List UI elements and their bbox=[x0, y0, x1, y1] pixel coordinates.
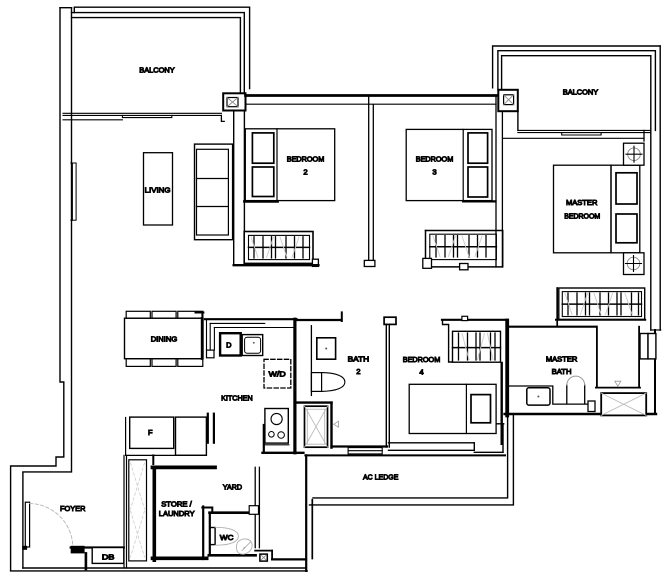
svg-text:LIVING: LIVING bbox=[145, 185, 171, 194]
svg-text:YARD: YARD bbox=[223, 483, 243, 492]
svg-text:LAUNDRY: LAUNDRY bbox=[159, 509, 195, 518]
svg-text:WC: WC bbox=[220, 533, 234, 542]
svg-text:BEDROOM: BEDROOM bbox=[564, 212, 600, 221]
svg-text:F: F bbox=[148, 428, 153, 437]
svg-text:W/D: W/D bbox=[269, 370, 286, 379]
svg-text:KITCHEN: KITCHEN bbox=[221, 393, 253, 402]
svg-text:BEDROOM: BEDROOM bbox=[287, 155, 325, 164]
svg-text:2: 2 bbox=[356, 367, 360, 376]
svg-text:DB: DB bbox=[102, 553, 115, 562]
svg-text:2: 2 bbox=[303, 168, 307, 177]
svg-text:FOYER: FOYER bbox=[60, 504, 86, 513]
svg-text:STORE /: STORE / bbox=[161, 499, 192, 508]
svg-text:DINING: DINING bbox=[151, 335, 178, 344]
svg-text:3: 3 bbox=[432, 168, 436, 177]
svg-text:D: D bbox=[226, 341, 231, 350]
svg-text:BEDROOM: BEDROOM bbox=[403, 355, 441, 364]
svg-text:MASTER: MASTER bbox=[546, 354, 578, 363]
svg-text:BEDROOM: BEDROOM bbox=[416, 155, 454, 164]
svg-text:4: 4 bbox=[419, 368, 424, 377]
svg-text:BALCONY: BALCONY bbox=[139, 66, 175, 75]
svg-text:AC LEDGE: AC LEDGE bbox=[363, 473, 398, 482]
svg-text:BATH: BATH bbox=[348, 355, 370, 364]
svg-text:BALCONY: BALCONY bbox=[563, 87, 599, 96]
svg-text:MASTER: MASTER bbox=[566, 198, 598, 207]
svg-text:BATH: BATH bbox=[552, 367, 572, 376]
